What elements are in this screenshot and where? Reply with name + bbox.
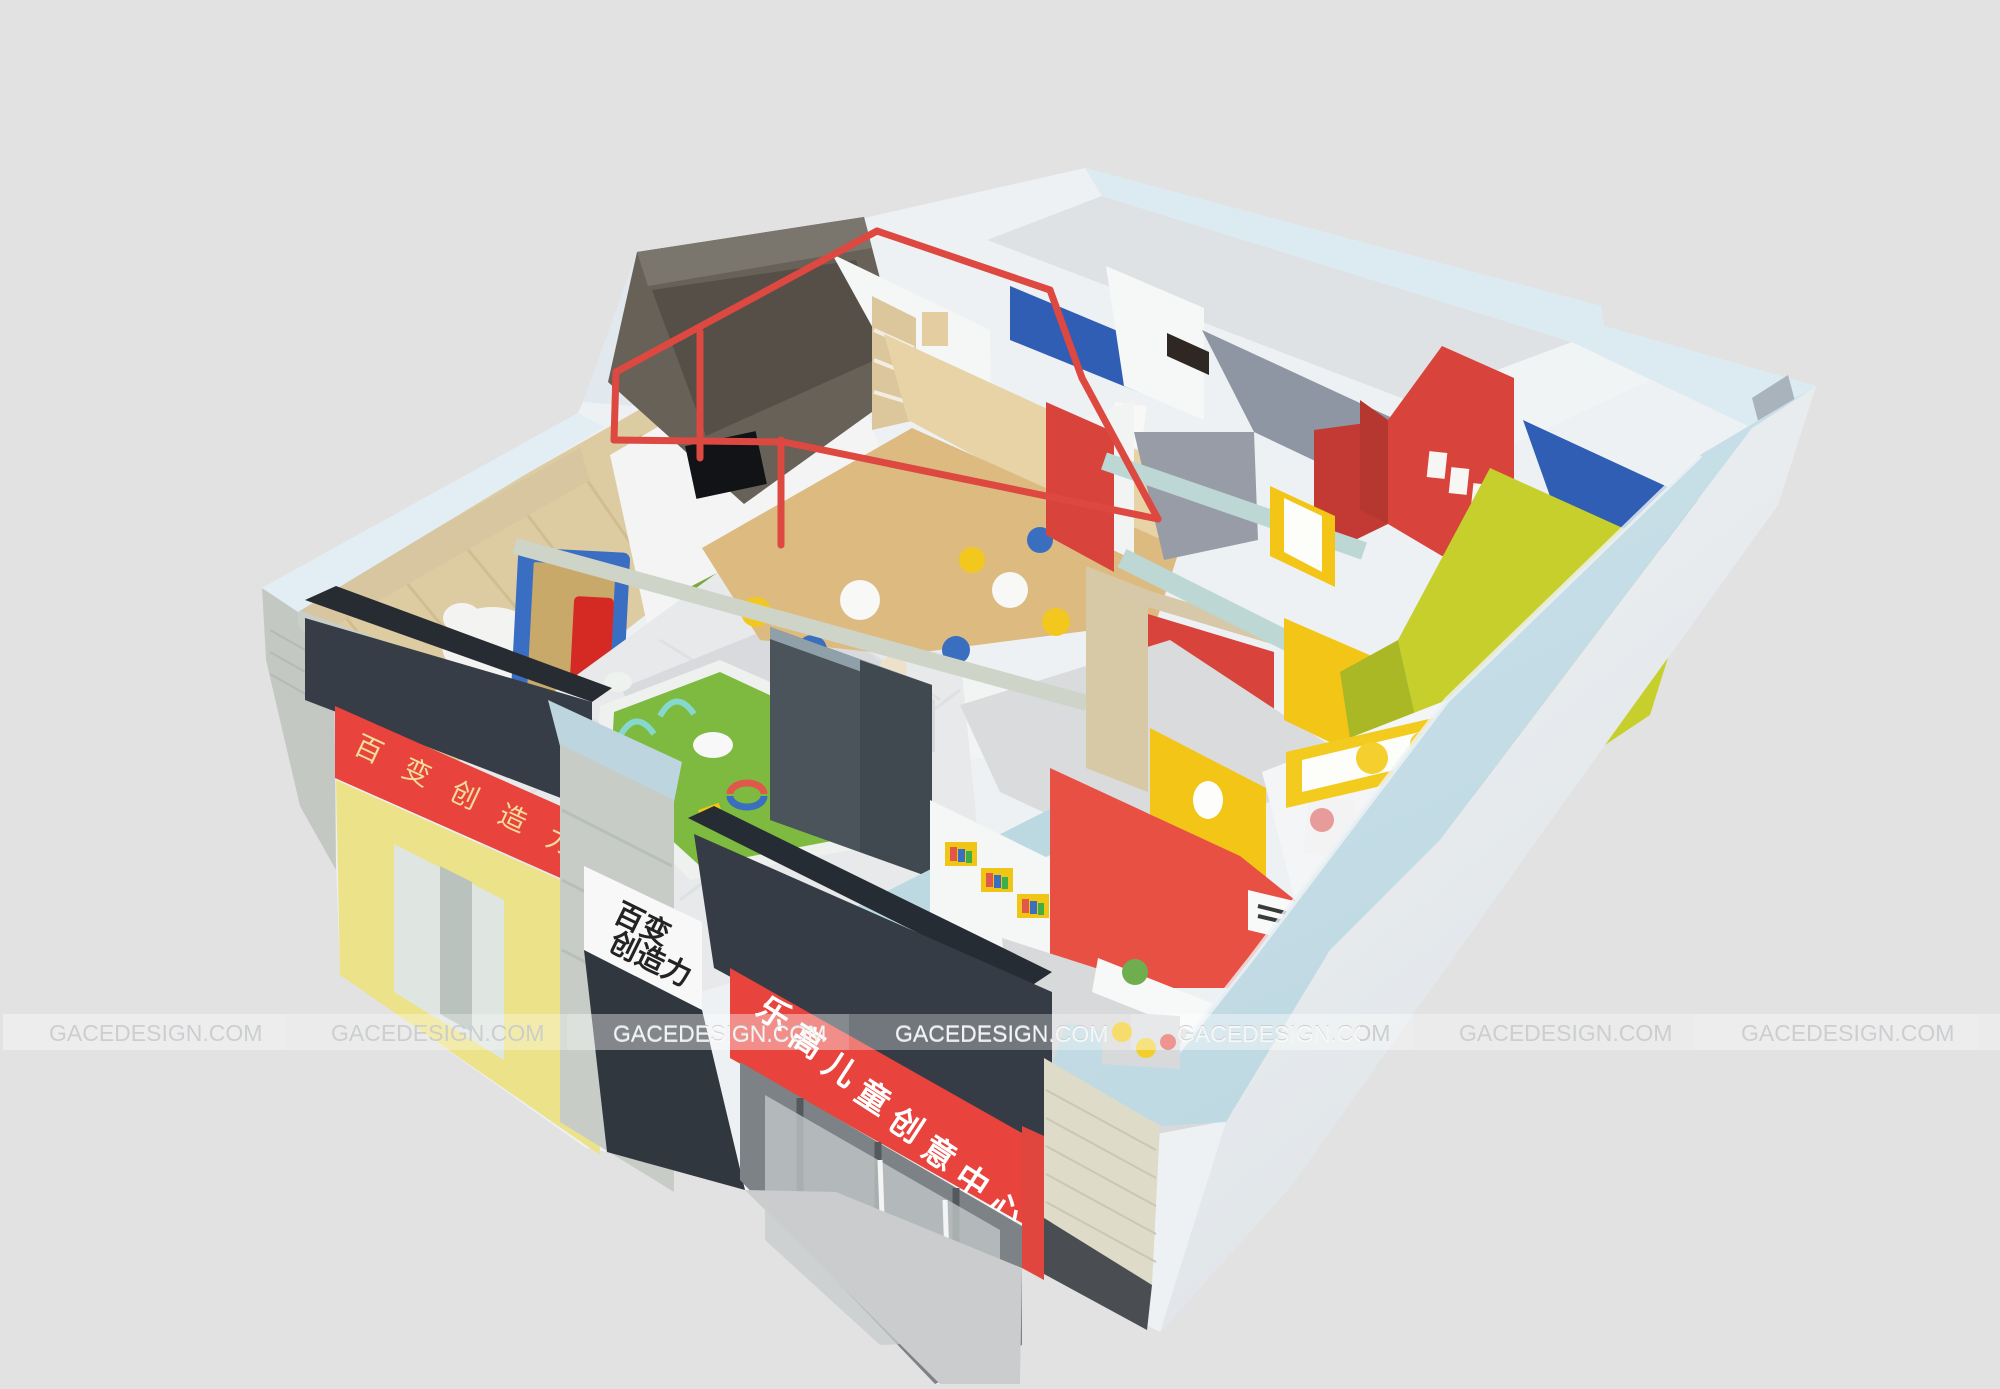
- svg-text:GACEDESIGN.COM: GACEDESIGN.COM: [895, 1021, 1108, 1047]
- svg-text:GACEDESIGN.COM: GACEDESIGN.COM: [1459, 1020, 1672, 1046]
- svg-text:GACEDESIGN.COM: GACEDESIGN.COM: [331, 1020, 544, 1046]
- svg-text:GACEDESIGN.COM: GACEDESIGN.COM: [1177, 1021, 1390, 1047]
- svg-text:GACEDESIGN.COM: GACEDESIGN.COM: [613, 1021, 826, 1047]
- svg-text:GACEDESIGN.COM: GACEDESIGN.COM: [49, 1020, 262, 1046]
- svg-text:GACEDESIGN.COM: GACEDESIGN.COM: [1741, 1020, 1954, 1046]
